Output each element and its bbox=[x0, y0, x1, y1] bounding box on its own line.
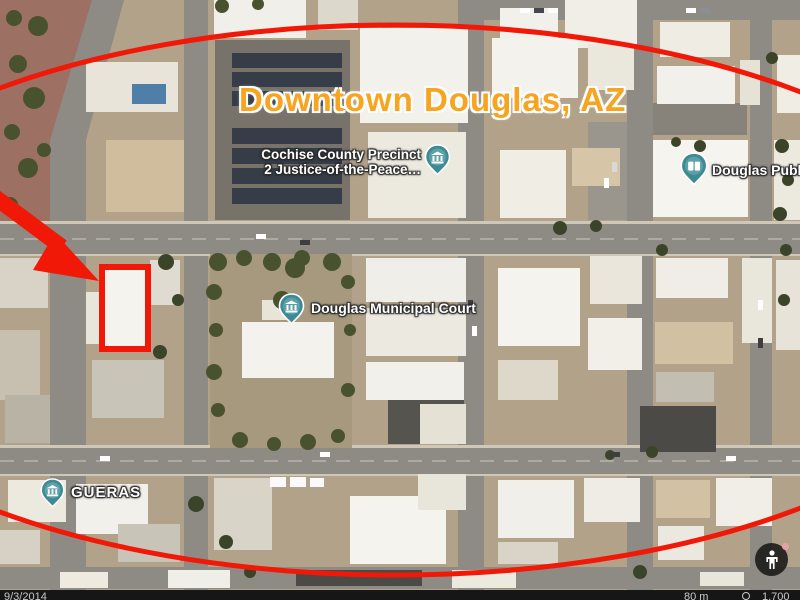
status-bar: 9/3/2014 80 m 1,700 bbox=[0, 590, 800, 600]
label-municipal-court[interactable]: Douglas Municipal Court bbox=[311, 301, 476, 316]
courthouse-pin-icon[interactable] bbox=[40, 478, 65, 508]
pegman-control[interactable] bbox=[755, 543, 800, 588]
earth-viewport: Downtown Douglas, AZ Cochise County Prec… bbox=[0, 0, 800, 600]
page-title: Downtown Douglas, AZ bbox=[239, 81, 626, 119]
eye-altitude-icon bbox=[742, 592, 750, 600]
arrow-annotation bbox=[0, 186, 99, 281]
building-highlight-rectangle bbox=[102, 267, 148, 349]
imagery-date: 9/3/2014 bbox=[4, 591, 47, 600]
library-pin-icon[interactable] bbox=[680, 152, 708, 186]
eye-altitude: 1,700 bbox=[762, 591, 790, 600]
courthouse-pin-icon[interactable] bbox=[278, 293, 305, 325]
notification-dot bbox=[782, 543, 789, 550]
label-gueras[interactable]: GUERAS bbox=[71, 485, 141, 500]
courthouse-pin-icon[interactable] bbox=[424, 144, 451, 176]
scale-text: 80 m bbox=[684, 591, 708, 600]
label-douglas-public[interactable]: Douglas Public bbox=[712, 163, 800, 178]
label-cochise-precinct[interactable]: Cochise County Precinct 2 Justice-of-the… bbox=[255, 147, 421, 177]
